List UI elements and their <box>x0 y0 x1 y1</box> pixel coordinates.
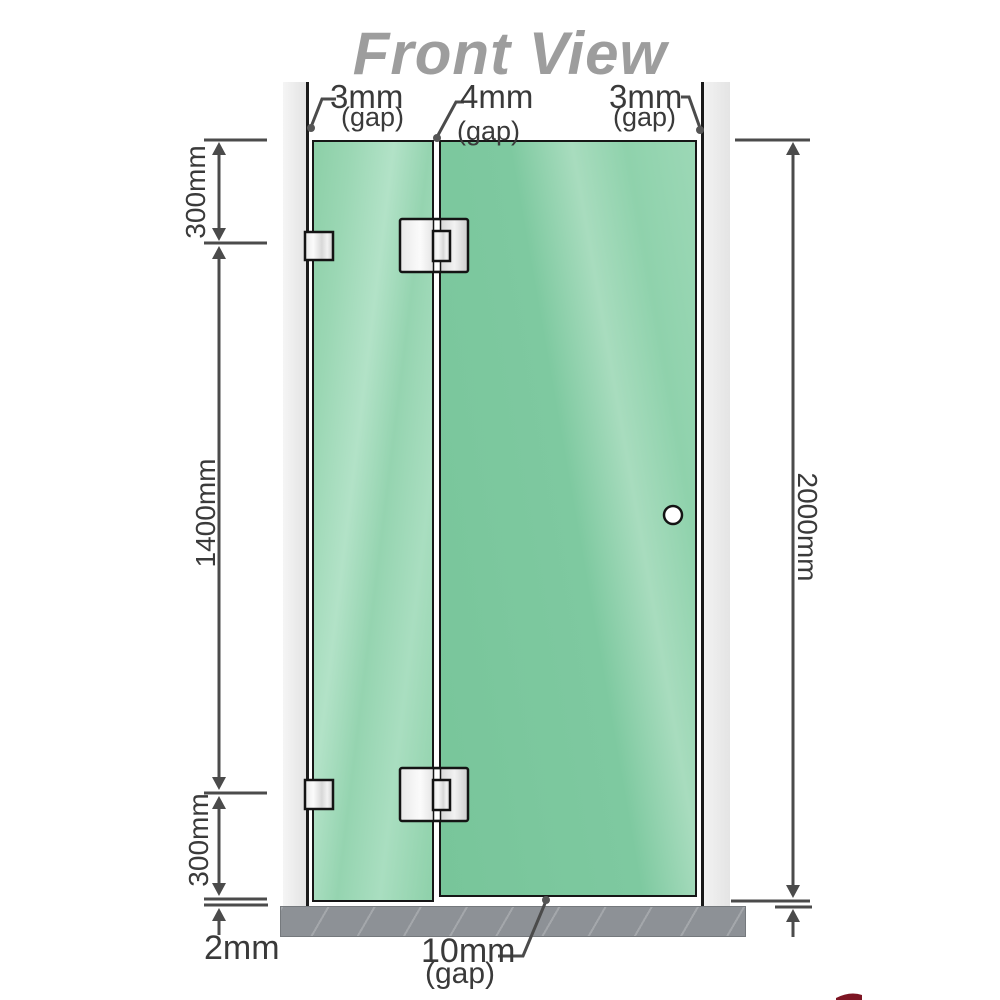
door-handle-icon <box>664 506 682 524</box>
leader-gap-top-right <box>681 97 700 128</box>
label-dim-right: 2000mm <box>793 473 821 582</box>
label-gap-top-right-note: (gap) <box>613 104 676 131</box>
leader-lines <box>311 97 700 956</box>
label-gap-top-middle-note: (gap) <box>457 118 520 145</box>
top-wall-bracket <box>305 232 333 260</box>
top-hinge <box>400 219 468 272</box>
bottom-hinge <box>400 768 468 821</box>
label-dim-left-bottom: 300mm <box>185 793 213 886</box>
label-gap-top-middle: 4mm <box>460 80 533 113</box>
diagram-linework <box>0 0 1000 1000</box>
label-gap-bottom-note: (gap) <box>425 959 495 989</box>
label-dim-floor: 2mm <box>204 931 280 965</box>
label-dim-left-top: 300mm <box>182 145 210 238</box>
diagram-canvas: Front View <box>0 0 1000 1000</box>
bottom-wall-bracket <box>305 780 333 809</box>
label-gap-top-left-note: (gap) <box>341 104 404 131</box>
logo-fragment <box>836 994 862 1000</box>
leader-dots <box>307 124 704 904</box>
label-dim-left-middle: 1400mm <box>192 459 220 568</box>
